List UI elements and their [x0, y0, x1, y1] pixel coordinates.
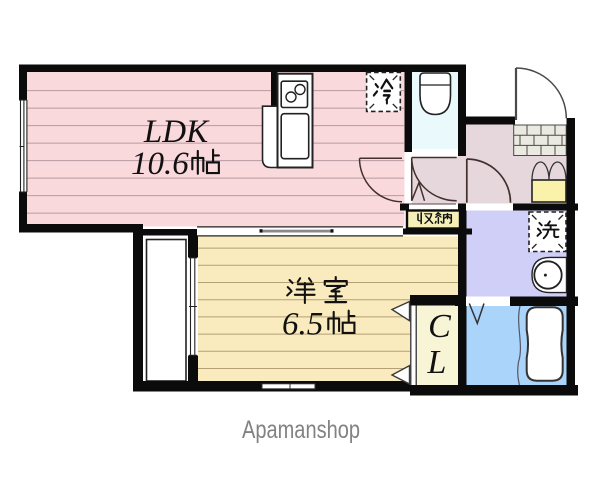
svg-text:LDK: LDK — [143, 114, 210, 150]
svg-text:6.5: 6.5 — [282, 307, 323, 343]
svg-text:10.6: 10.6 — [131, 146, 189, 182]
svg-text:L: L — [427, 344, 447, 381]
svg-text:Apamanshop: Apamanshop — [242, 416, 360, 444]
svg-text:C: C — [428, 308, 451, 345]
